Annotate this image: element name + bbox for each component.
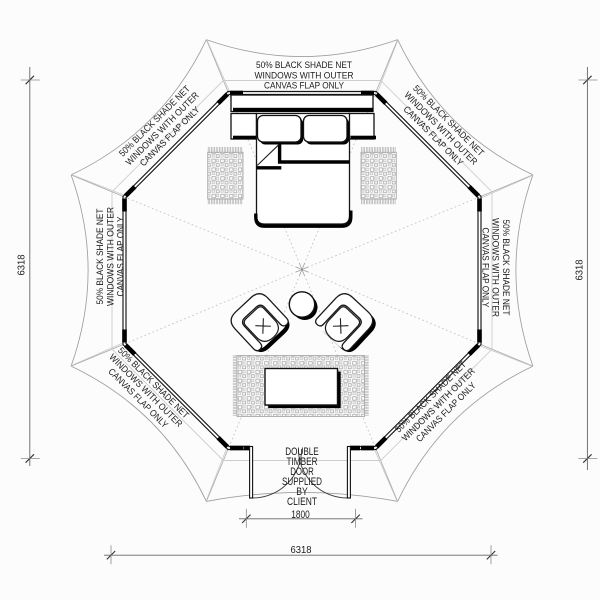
svg-text:6318: 6318	[575, 259, 586, 280]
svg-text:6318: 6318	[291, 545, 312, 556]
svg-text:CANVAS FLAP ONLY: CANVAS FLAP ONLY	[264, 81, 344, 91]
svg-text:CLIENT: CLIENT	[287, 496, 317, 508]
svg-text:50% BLACK SHADE NET: 50% BLACK SHADE NET	[95, 208, 105, 304]
svg-text:50% BLACK SHADE NET: 50% BLACK SHADE NET	[501, 220, 511, 316]
svg-text:WINDOWS WITH OUTER: WINDOWS WITH OUTER	[491, 218, 501, 317]
svg-text:1800: 1800	[291, 509, 310, 521]
svg-text:CANVAS FLAP ONLY: CANVAS FLAP ONLY	[116, 217, 126, 297]
svg-text:6318: 6318	[17, 254, 28, 275]
svg-text:CANVAS FLAP ONLY: CANVAS FLAP ONLY	[481, 228, 491, 308]
svg-text:WINDOWS WITH OUTER: WINDOWS WITH OUTER	[255, 70, 354, 80]
svg-text:WINDOWS WITH OUTER: WINDOWS WITH OUTER	[105, 207, 115, 306]
svg-text:50% BLACK SHADE NET: 50% BLACK SHADE NET	[256, 60, 352, 70]
